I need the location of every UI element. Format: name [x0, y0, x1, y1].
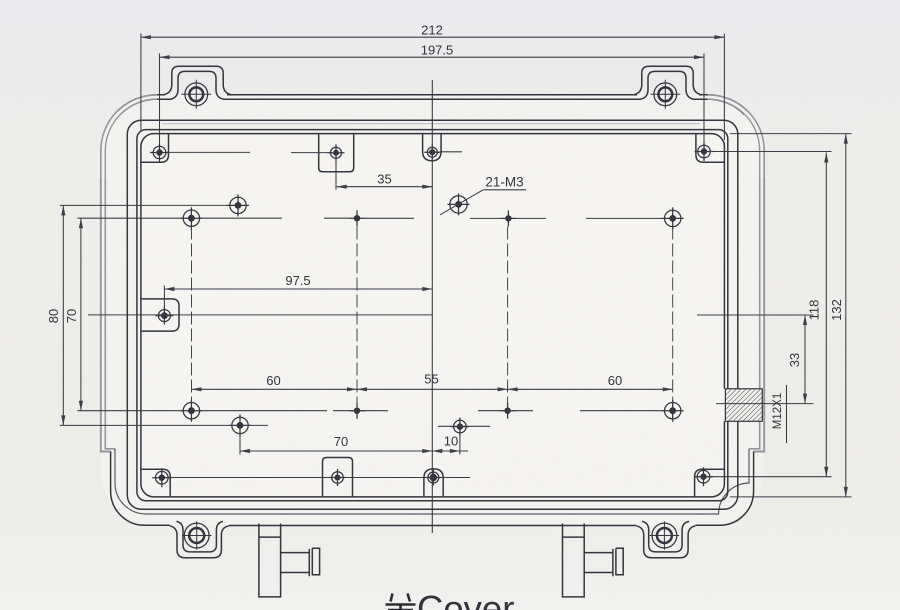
svg-text:Cover: Cover	[417, 588, 514, 610]
svg-text:212: 212	[421, 23, 443, 38]
svg-text:33: 33	[787, 353, 802, 367]
svg-text:M12X1: M12X1	[772, 393, 784, 429]
svg-text:118: 118	[807, 300, 822, 321]
svg-text:35: 35	[377, 171, 391, 186]
svg-text:97.5: 97.5	[285, 273, 310, 288]
svg-text:70: 70	[334, 434, 348, 449]
svg-text:21-M3: 21-M3	[485, 175, 523, 190]
svg-text:197.5: 197.5	[421, 43, 454, 58]
svg-text:70: 70	[64, 309, 79, 323]
svg-text:55: 55	[424, 372, 438, 387]
svg-text:10: 10	[444, 434, 458, 449]
svg-text:60: 60	[266, 373, 280, 388]
svg-text:132: 132	[829, 299, 844, 321]
svg-text:80: 80	[46, 309, 61, 323]
svg-text:60: 60	[608, 373, 622, 388]
